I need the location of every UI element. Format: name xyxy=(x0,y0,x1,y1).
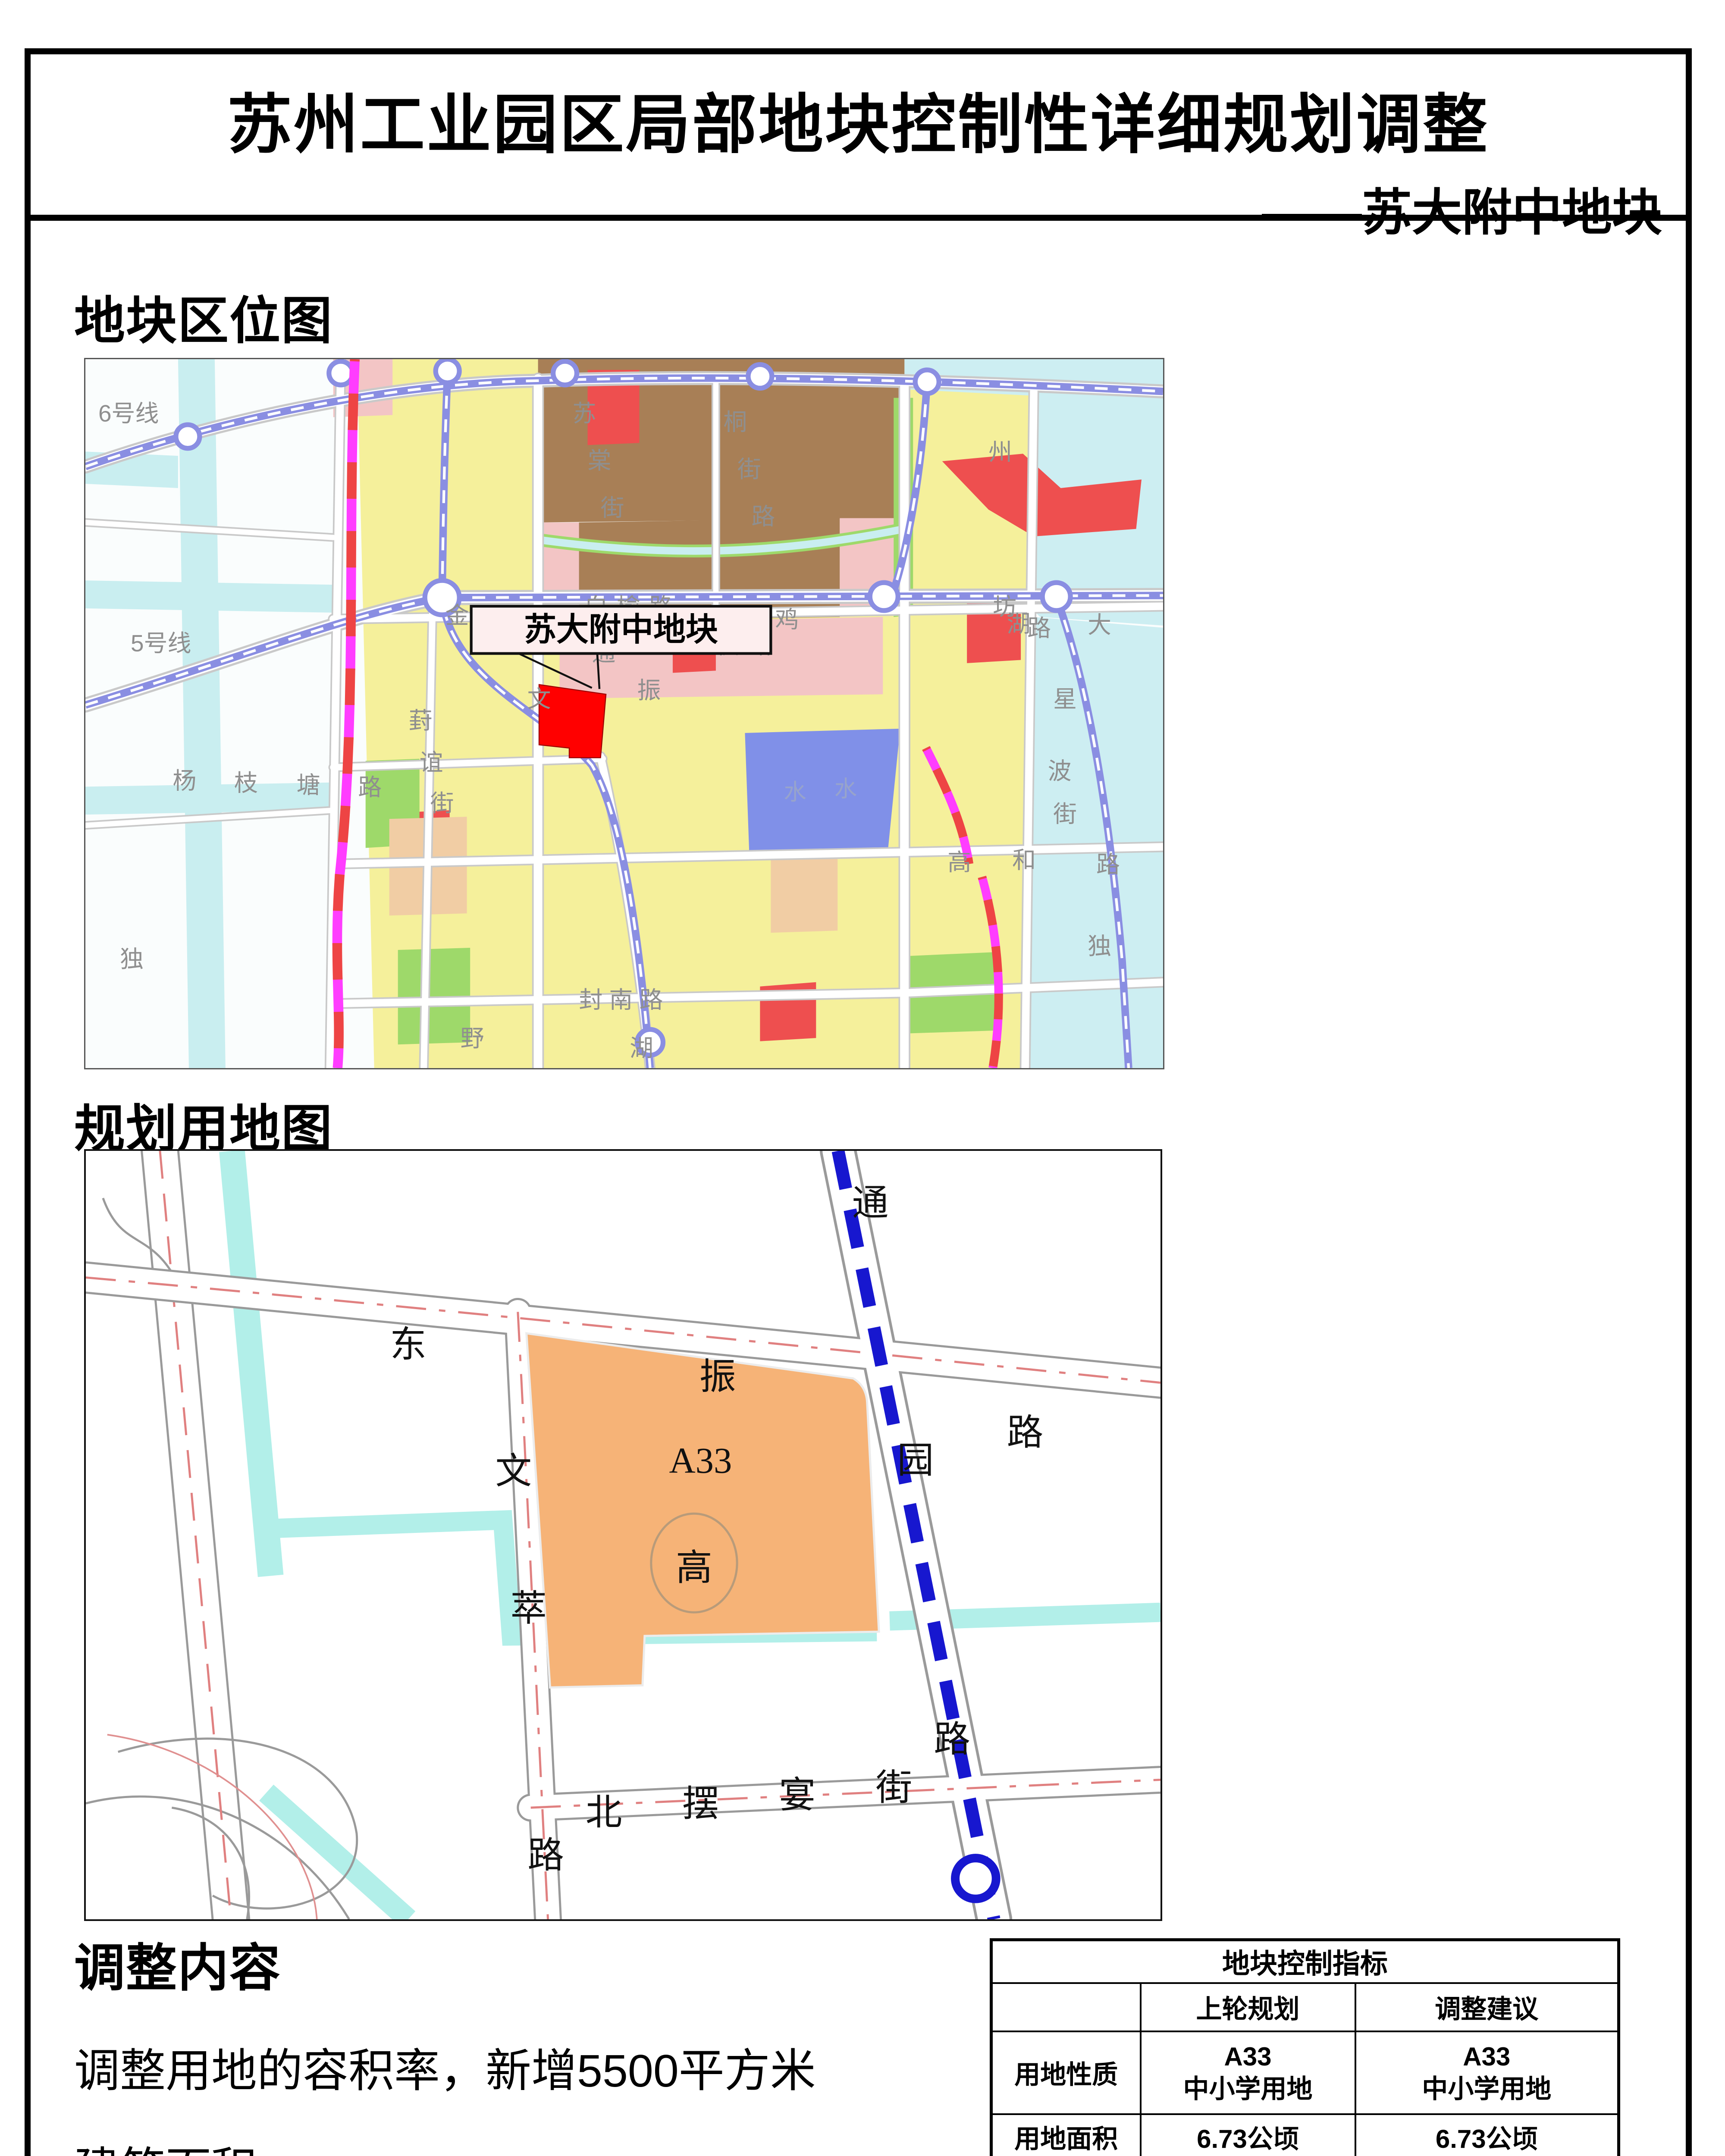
label-su: 苏 xyxy=(573,400,596,427)
header-empty xyxy=(991,1983,1141,2031)
label-fengnan-road: 封南路 xyxy=(579,987,670,1013)
label-water-2: 水 xyxy=(834,777,857,802)
table-title-row: 地块控制指标 xyxy=(991,1940,1619,1983)
label-tang: 塘 xyxy=(297,771,320,798)
label-jie4: 街 xyxy=(430,790,454,817)
table-title: 地块控制指标 xyxy=(991,1940,1619,1983)
location-map-heading: 地块区位图 xyxy=(74,279,333,353)
landuse-map: A33 高 东 振 路 文 萃 路 北 摆 宴 街 通 园 路 xyxy=(84,1149,1162,1921)
row-proposed: A33 中小学用地 xyxy=(1355,2031,1619,2114)
river-west xyxy=(178,359,226,1068)
label-lu-top: 路 xyxy=(1007,1413,1044,1453)
label-jin: 金 xyxy=(445,602,469,629)
table-row: 用地性质 A33 中小学用地 A33 中小学用地 xyxy=(991,2031,1619,2114)
adjustment-text: 调整用地的容积率，新增5500平方米 建筑面积。 xyxy=(74,2022,971,2156)
label-water-1: 水 xyxy=(784,780,806,805)
label-yi: 谊 xyxy=(420,749,443,776)
label-zhi: 枝 xyxy=(234,769,258,796)
label-yuan: 园 xyxy=(897,1441,934,1481)
label-wen: 文 xyxy=(495,1452,532,1492)
table-header-row: 上轮规划 调整建议 xyxy=(991,1983,1619,2031)
page-subtitle: ——苏大附中地块 xyxy=(31,172,1686,244)
adjustment-line-1: 调整用地的容积率，新增5500平方米 xyxy=(74,2022,971,2121)
label-du-east: 独 xyxy=(1088,933,1111,959)
label-jie2: 街 xyxy=(737,456,761,483)
header-previous-plan: 上轮规划 xyxy=(1141,1983,1355,2031)
label-yang: 杨 xyxy=(172,767,196,794)
label-zhen: 振 xyxy=(699,1357,736,1398)
location-map: 6号线 5号线 杨 枝 塘 路 独 苏 棠 街 桐 街 路 白榆路 红枫路 金 … xyxy=(84,358,1164,1069)
label-jie: 街 xyxy=(876,1768,913,1808)
pond-blue xyxy=(745,729,900,858)
label-lu2: 路 xyxy=(751,503,775,530)
table-row: 用地面积 6.73公顷 6.73公顷 xyxy=(991,2114,1619,2156)
label-cui: 萃 xyxy=(510,1589,547,1629)
label-lu3: 路 xyxy=(1027,615,1051,642)
label-line5: 5号线 xyxy=(131,630,191,657)
plot-mark-label: 高 xyxy=(676,1548,712,1589)
label-bai: 摆 xyxy=(682,1784,719,1824)
label-lu-metro: 路 xyxy=(934,1720,970,1760)
label-tong: 桐 xyxy=(723,408,747,435)
row-prev: 6.73公顷 xyxy=(1141,2114,1355,2156)
header-adjust-proposal: 调整建议 xyxy=(1355,1983,1619,2031)
page-title: 苏州工业园区局部地块控制性详细规划调整 xyxy=(31,72,1686,166)
callout-label: 苏大附中地块 xyxy=(524,611,718,648)
label-lu: 路 xyxy=(358,774,382,800)
label-line6: 6号线 xyxy=(98,400,159,427)
label-jie3: 街 xyxy=(1053,801,1077,827)
metro-station xyxy=(955,1858,996,1899)
plot-code-label: A33 xyxy=(669,1441,732,1481)
label-zhen: 振 xyxy=(637,677,661,704)
label-lu-left: 路 xyxy=(527,1836,564,1876)
adjustment-line-2: 建筑面积。 xyxy=(74,2121,971,2156)
landuse-map-canvas: A33 高 东 振 路 文 萃 路 北 摆 宴 街 通 园 路 xyxy=(86,1151,1160,1919)
row-label: 用地面积 xyxy=(991,2114,1141,2156)
label-jie: 街 xyxy=(601,495,624,521)
label-da: 大 xyxy=(1088,611,1111,638)
label-wen: 文 xyxy=(527,686,551,712)
label-bei: 北 xyxy=(586,1793,622,1833)
label-ye: 野 xyxy=(461,1025,484,1052)
indicator-table: 地块控制指标 上轮规划 调整建议 用地性质 A33 中小学用地 A33 中小学用… xyxy=(990,1938,1620,2156)
row-label: 用地性质 xyxy=(991,2031,1141,2114)
label-feng: 葑 xyxy=(409,707,433,734)
label-fang: 坊 xyxy=(993,593,1016,620)
label-bo: 波 xyxy=(1048,758,1072,784)
ramp-centerline xyxy=(107,1735,317,1919)
row-prev: A33 中小学用地 xyxy=(1141,2031,1355,2114)
label-hu2: 湖 xyxy=(630,1035,653,1062)
river-west-mid xyxy=(85,580,333,613)
label-tang2: 棠 xyxy=(588,447,612,474)
label-yan: 宴 xyxy=(779,1776,815,1816)
adjustment-heading: 调整内容 xyxy=(74,1927,281,2000)
label-he: 和 xyxy=(1012,847,1036,874)
label-xing: 星 xyxy=(1053,686,1077,712)
label-tong: 通 xyxy=(852,1183,889,1223)
zone-tan-2 xyxy=(771,858,837,933)
label-du-west: 独 xyxy=(120,946,144,972)
title-block: 苏州工业园区局部地块控制性详细规划调整 ——苏大附中地块 xyxy=(25,48,1692,221)
label-lu4: 路 xyxy=(1096,851,1120,878)
label-gao: 高 xyxy=(947,849,971,876)
label-dong: 东 xyxy=(390,1325,427,1365)
label-zhou: 州 xyxy=(988,439,1012,465)
row-proposed: 6.73公顷 xyxy=(1355,2114,1619,2156)
label-ji: 鸡 xyxy=(775,606,799,633)
location-map-canvas: 6号线 5号线 杨 枝 塘 路 独 苏 棠 街 桐 街 路 白榆路 红枫路 金 … xyxy=(85,359,1163,1068)
